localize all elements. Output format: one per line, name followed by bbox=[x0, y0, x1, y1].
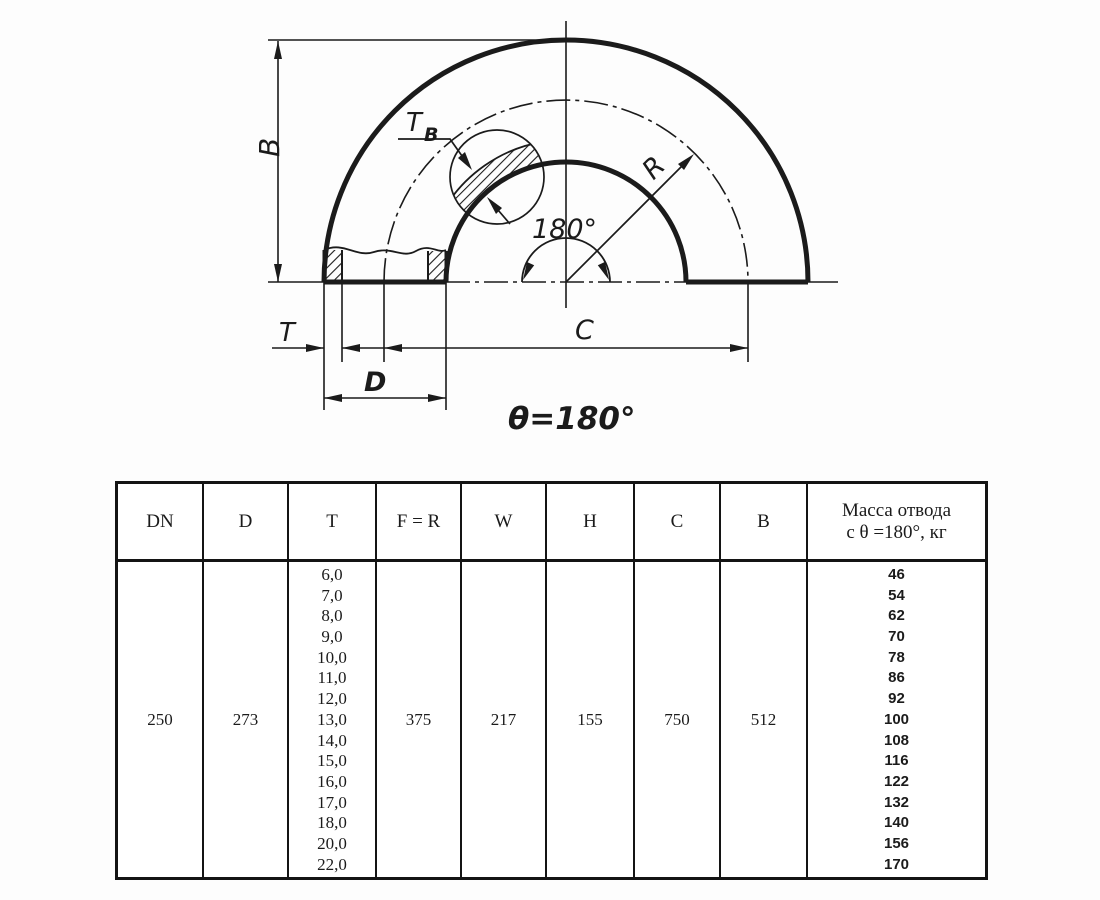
d-dimension-label: D bbox=[364, 367, 386, 398]
technical-drawing: T B B R 180° bbox=[0, 0, 1100, 465]
table-cell-value: 17,0 bbox=[317, 793, 347, 812]
header-label: H bbox=[583, 511, 597, 533]
header-cell-b: B bbox=[721, 484, 808, 562]
spec-table: DN D T F = R W H C B Масса отвода с θ =1… bbox=[115, 481, 988, 880]
t-arrowhead-left bbox=[306, 344, 324, 352]
table-cell-value: 13,0 bbox=[317, 710, 347, 729]
table-cell-value: 140 bbox=[884, 813, 909, 832]
table-cell-value: 116 bbox=[884, 751, 908, 770]
table-cell-value: 18,0 bbox=[317, 813, 347, 832]
wall-hatch-right bbox=[428, 251, 446, 282]
angle-label: 180° bbox=[532, 214, 597, 245]
b-arrowhead-bottom bbox=[274, 264, 282, 282]
elbow-body bbox=[268, 21, 838, 308]
cell-b: 512 bbox=[721, 562, 808, 877]
table-cell-value: 12,0 bbox=[317, 689, 347, 708]
wall-hatch-left bbox=[324, 250, 342, 282]
table-cell-value: 22,0 bbox=[317, 855, 347, 874]
tb-label: T bbox=[406, 108, 424, 138]
header-cell-c: C bbox=[635, 484, 721, 562]
table-cell-value: 122 bbox=[884, 772, 909, 791]
table-cell-value: 15,0 bbox=[317, 751, 347, 770]
page: T B B R 180° bbox=[0, 0, 1100, 900]
d-dimension: D bbox=[324, 367, 446, 402]
table-cell-value: 14,0 bbox=[317, 731, 347, 750]
cell-w: 217 bbox=[462, 562, 547, 877]
header-cell-f-r: F = R bbox=[377, 484, 462, 562]
header-cell-d: D bbox=[204, 484, 289, 562]
table-cell-value: 70 bbox=[888, 627, 905, 646]
b-dimension-label: B bbox=[253, 138, 286, 157]
header-label: B bbox=[757, 511, 770, 533]
table-cell-value: 8,0 bbox=[321, 606, 342, 625]
header-cell-dn: DN bbox=[118, 484, 204, 562]
theta-caption: θ=180° bbox=[508, 401, 635, 437]
header-label: T bbox=[326, 511, 338, 533]
table-cell-value: 20,0 bbox=[317, 834, 347, 853]
table-cell-value: 108 bbox=[884, 731, 909, 750]
table-cell-value: 10,0 bbox=[317, 648, 347, 667]
header-cell-w: W bbox=[462, 484, 547, 562]
table-cell-value: 46 bbox=[888, 565, 905, 584]
cell-d: 273 bbox=[204, 562, 289, 877]
table-cell-value: 7,0 bbox=[321, 586, 342, 605]
header-cell-t: T bbox=[289, 484, 377, 562]
header-label: W bbox=[495, 511, 513, 533]
d-arrowhead-right bbox=[428, 394, 446, 402]
header-label: D bbox=[239, 511, 253, 533]
c-arrowhead-left bbox=[384, 344, 402, 352]
table-cell-value: 132 bbox=[884, 793, 909, 812]
table-cell-value: 78 bbox=[888, 648, 905, 667]
cell-f-r: 375 bbox=[377, 562, 462, 877]
header-cell-mass: Масса отвода с θ =180°, кг bbox=[808, 484, 985, 562]
c-arrowhead-right bbox=[730, 344, 748, 352]
extension-lines bbox=[324, 282, 748, 410]
cell-mass-values: 46546270788692100108116122132140156170 bbox=[808, 562, 985, 877]
cell-h: 155 bbox=[547, 562, 635, 877]
table-cell-value: 62 bbox=[888, 606, 905, 625]
cell-t-values: 6,07,08,09,010,011,012,013,014,015,016,0… bbox=[289, 562, 377, 877]
table-cell-value: 170 bbox=[884, 855, 909, 874]
table-cell-value: 16,0 bbox=[317, 772, 347, 791]
tb-detail: T B bbox=[398, 108, 556, 231]
table-cell-value: 100 bbox=[884, 710, 909, 729]
d-arrowhead-left bbox=[324, 394, 342, 402]
table-cell-value: 86 bbox=[888, 668, 905, 687]
c-dimension-label: C bbox=[575, 315, 594, 346]
cell-dn: 250 bbox=[118, 562, 204, 877]
header-label: F = R bbox=[397, 511, 440, 533]
t-dimension-label: T bbox=[279, 318, 297, 348]
table-cell-value: 11,0 bbox=[317, 668, 346, 687]
mass-header-line2: с θ =180°, кг bbox=[846, 522, 946, 544]
table-cell-value: 54 bbox=[888, 586, 905, 605]
r-dimension-label: R bbox=[636, 150, 671, 185]
table-cell-value: 156 bbox=[884, 834, 909, 853]
table-cell-value: 92 bbox=[888, 689, 905, 708]
table-cell-value: 9,0 bbox=[321, 627, 342, 646]
c-dimension: C bbox=[342, 315, 748, 352]
b-arrowhead-top bbox=[274, 41, 282, 59]
header-cell-h: H bbox=[547, 484, 635, 562]
cell-c: 750 bbox=[635, 562, 721, 877]
tb-label-subscript: B bbox=[424, 124, 438, 146]
mass-header-line1: Масса отвода bbox=[842, 500, 951, 522]
header-label: C bbox=[671, 511, 684, 533]
table-cell-value: 6,0 bbox=[321, 565, 342, 584]
t-dimension: T bbox=[272, 318, 360, 352]
header-label: DN bbox=[146, 511, 173, 533]
